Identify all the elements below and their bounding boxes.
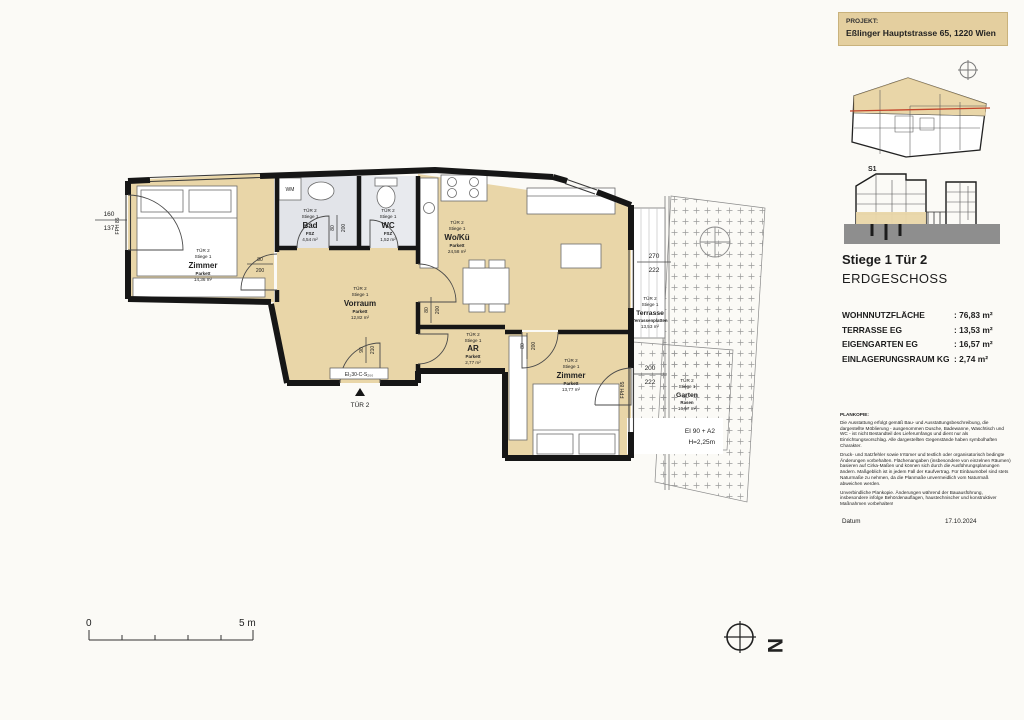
area-value: : 13,53 m² — [954, 323, 1014, 338]
area-row: WOHNNUTZFLÄCHE : 76,83 m² — [842, 308, 1014, 323]
entry-door-group: EI₂30-C-S₂₀₀ TÜR 2 — [330, 368, 388, 409]
svg-text:TÜR 2: TÜR 2 — [643, 295, 657, 301]
entry-marker-icon — [355, 388, 365, 396]
date-label: Datum — [842, 518, 861, 525]
unit-title-block: Stiege 1 Tür 2 ERDGESCHOSS — [842, 252, 948, 286]
svg-text:Bad: Bad — [302, 221, 317, 230]
title-block-sidebar: PROJEKT: Eßlinger Hauptstrasse 65, 1220 … — [830, 0, 1016, 720]
wall-fire-note: EI 90 + A2 H=2,25m — [627, 418, 723, 454]
svg-text:137: 137 — [104, 225, 115, 232]
svg-text:222: 222 — [649, 267, 660, 274]
svg-text:24,58 m²: 24,58 m² — [448, 249, 467, 254]
scale-five-label: 5 m — [239, 618, 256, 629]
wall-fire-label-2: H=2,25m — [688, 439, 715, 446]
room-label-bad: TÜR 2 Stiege 1 Bad FSZ 4,54 m² — [302, 207, 319, 242]
svg-text:Stiege 1: Stiege 1 — [380, 214, 397, 219]
svg-text:210: 210 — [370, 346, 376, 355]
disclaimer-title: PLANKOPIE: — [840, 412, 1012, 418]
svg-text:Wo/Kü: Wo/Kü — [444, 233, 469, 242]
scale-bar: 0 5 m — [86, 618, 256, 640]
svg-text:Terrasse: Terrasse — [636, 310, 664, 317]
svg-text:Parkett: Parkett — [196, 271, 211, 276]
entry-door-label: TÜR 2 — [351, 401, 370, 409]
svg-text:Parkett: Parkett — [466, 354, 481, 359]
svg-text:200: 200 — [645, 365, 656, 372]
area-row: TERRASSE EG : 13,53 m² — [842, 323, 1014, 338]
svg-text:TÜR 2: TÜR 2 — [450, 219, 464, 225]
svg-text:Vorraum: Vorraum — [344, 299, 376, 308]
unit-floor: ERDGESCHOSS — [842, 271, 948, 286]
svg-text:80: 80 — [257, 257, 263, 263]
svg-text:80: 80 — [424, 307, 430, 313]
area-value: : 76,83 m² — [954, 308, 1014, 323]
tree-icon — [700, 227, 730, 257]
site-key-plan — [840, 58, 1008, 158]
area-label: EINLAGERUNGSRAUM KG — [842, 352, 954, 367]
area-row: EIGENGARTEN EG : 16,57 m² — [842, 337, 1014, 352]
svg-text:200: 200 — [531, 342, 537, 351]
area-label: EIGENGARTEN EG — [842, 337, 954, 352]
site-building-outline — [850, 78, 990, 157]
area-table: WOHNNUTZFLÄCHE : 76,83 m² TERRASSE EG : … — [842, 308, 1014, 366]
svg-text:2,77 m²: 2,77 m² — [465, 360, 481, 365]
svg-text:Stiege 1: Stiege 1 — [352, 292, 369, 297]
svg-text:12,82 m²: 12,82 m² — [351, 315, 370, 320]
project-header: PROJEKT: Eßlinger Hauptstrasse 65, 1220 … — [838, 12, 1008, 46]
svg-text:TÜR 2: TÜR 2 — [680, 377, 694, 383]
svg-text:Stiege 1: Stiege 1 — [642, 302, 659, 307]
site-compass-icon — [958, 60, 978, 80]
svg-text:16,57 m²: 16,57 m² — [678, 406, 697, 411]
svg-text:200: 200 — [435, 306, 441, 315]
area-value: : 16,57 m² — [954, 337, 1014, 352]
svg-text:FSZ: FSZ — [306, 231, 315, 236]
svg-text:Terrassenplatten: Terrassenplatten — [632, 318, 667, 323]
svg-text:1,52 m²: 1,52 m² — [380, 237, 396, 242]
plan-disclaimer: PLANKOPIE: Die Ausstattung erfolgt gemäß… — [840, 412, 1012, 510]
area-label: TERRASSE EG — [842, 323, 954, 338]
scale-zero-label: 0 — [86, 618, 92, 629]
room-ar-floor — [418, 326, 505, 371]
svg-text:90: 90 — [359, 347, 365, 353]
section-highlight-floor — [856, 212, 926, 224]
dim-left: 160 137 — [95, 211, 127, 232]
washing-machine-label: WM — [286, 187, 295, 193]
svg-text:80: 80 — [330, 225, 336, 231]
unit-title: Stiege 1 Tür 2 — [842, 252, 948, 267]
section-ground — [844, 224, 1000, 244]
area-value: : 2,74 m² — [954, 352, 1014, 367]
area-label: WOHNNUTZFLÄCHE — [842, 308, 954, 323]
svg-text:FSZ: FSZ — [384, 231, 393, 236]
scanned-floorplan-page: { "project": { "label": "PROJEKT:", "add… — [0, 0, 1024, 720]
svg-text:4,54 m²: 4,54 m² — [302, 237, 318, 242]
svg-text:Parkett: Parkett — [564, 381, 579, 386]
room-vorraum-floor — [271, 248, 418, 383]
section-label: S1 — [868, 166, 877, 173]
svg-text:Parkett: Parkett — [353, 309, 368, 314]
disclaimer-paragraph: Unverbindliche Plankopie. Änderungen wäh… — [840, 490, 1012, 507]
north-letter: N — [763, 638, 786, 653]
building-section: S1 — [842, 160, 1002, 252]
area-row: EINLAGERUNGSRAUM KG : 2,74 m² — [842, 352, 1014, 367]
svg-text:Garten: Garten — [676, 392, 698, 399]
svg-text:222: 222 — [645, 379, 656, 386]
disclaimer-paragraph: Die Ausstattung erfolgt gemäß Bau- und A… — [840, 420, 1012, 449]
svg-text:Parkett: Parkett — [450, 243, 465, 248]
floor-plan: EI 90 + A2 H=2,25m — [75, 150, 800, 675]
room-label-wc: TÜR 2 Stiege 1 WC FSZ 1,52 m² — [380, 207, 397, 242]
svg-text:13,53 m²: 13,53 m² — [641, 324, 660, 329]
svg-text:80: 80 — [520, 343, 526, 349]
svg-text:200: 200 — [256, 268, 265, 274]
wall-fire-label-1: EI 90 + A2 — [685, 428, 716, 435]
svg-text:Stiege 1: Stiege 1 — [679, 384, 696, 389]
svg-text:TÜR 2: TÜR 2 — [353, 285, 367, 291]
svg-text:TÜR 2: TÜR 2 — [303, 207, 317, 213]
svg-text:160: 160 — [104, 211, 115, 218]
svg-text:TÜR 2: TÜR 2 — [466, 331, 480, 337]
svg-text:200: 200 — [341, 224, 347, 233]
svg-text:Stiege 1: Stiege 1 — [465, 338, 482, 343]
date-value: 17.10.2024 — [945, 518, 977, 525]
svg-text:Stiege 1: Stiege 1 — [302, 214, 319, 219]
svg-text:Zimmer: Zimmer — [557, 371, 586, 380]
svg-text:Stiege 1: Stiege 1 — [195, 254, 212, 259]
svg-text:TÜR 2: TÜR 2 — [564, 357, 578, 363]
disclaimer-paragraph: Druck- und Satzfehler sowie Irrtümer und… — [840, 452, 1012, 487]
svg-text:WC: WC — [381, 221, 395, 230]
svg-text:Stiege 1: Stiege 1 — [563, 364, 580, 369]
fph-right-label: FPH 85 — [620, 381, 626, 398]
svg-text:Stiege 1: Stiege 1 — [449, 226, 466, 231]
svg-text:270: 270 — [649, 253, 660, 260]
north-arrow-icon: N — [724, 621, 786, 653]
svg-text:Zimmer: Zimmer — [189, 261, 218, 270]
svg-text:Rasen: Rasen — [680, 400, 693, 405]
svg-text:TÜR 2: TÜR 2 — [381, 207, 395, 213]
svg-text:14,36 m²: 14,36 m² — [194, 277, 213, 282]
project-label: PROJEKT: — [846, 18, 1000, 25]
svg-text:AR: AR — [467, 344, 479, 353]
svg-text:13,77 m²: 13,77 m² — [562, 387, 581, 392]
svg-text:TÜR 2: TÜR 2 — [196, 247, 210, 253]
project-address: Eßlinger Hauptstrasse 65, 1220 Wien — [846, 28, 1000, 38]
fire-door-label: EI₂30-C-S₂₀₀ — [345, 372, 374, 378]
